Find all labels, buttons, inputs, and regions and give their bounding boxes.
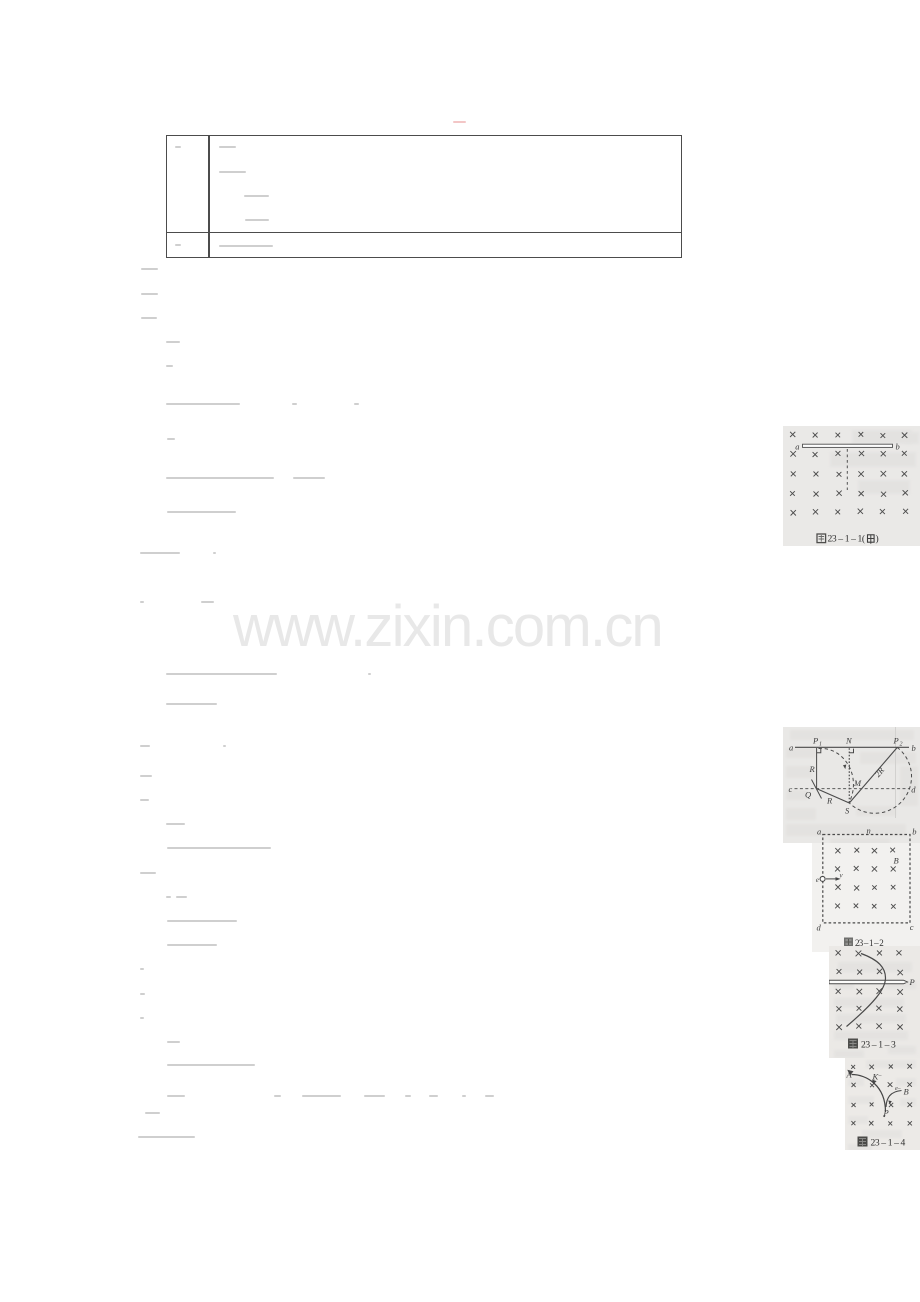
svg-text:R: R <box>809 764 816 774</box>
svg-text:P: P <box>812 736 818 746</box>
svg-text:): ) <box>876 534 879 545</box>
svg-text:Q: Q <box>805 790 811 800</box>
svg-text:B: B <box>894 856 899 866</box>
svg-text:d: d <box>911 785 916 795</box>
svg-text:1: 1 <box>819 742 822 748</box>
svg-text:a: a <box>789 743 793 753</box>
svg-text:e: e <box>816 876 819 884</box>
svg-text:b: b <box>912 828 916 837</box>
svg-text:a: a <box>795 442 799 452</box>
svg-text:e–: e– <box>895 1086 902 1092</box>
svg-text:23 – 1 – 3: 23 – 1 – 3 <box>861 1040 896 1051</box>
svg-text:A: A <box>846 1070 853 1080</box>
svg-text:M: M <box>853 778 862 788</box>
svg-text:B: B <box>904 1087 909 1097</box>
svg-text:P: P <box>909 977 915 987</box>
svg-text:a: a <box>817 828 821 837</box>
svg-text:2: 2 <box>900 742 903 748</box>
svg-text:R: R <box>826 796 833 806</box>
svg-text:b: b <box>896 442 900 452</box>
svg-text:P: P <box>893 736 899 746</box>
svg-text:23 – 1 – 4: 23 – 1 – 4 <box>871 1138 906 1149</box>
svg-text:P: P <box>883 1108 889 1118</box>
svg-text:b: b <box>912 743 916 753</box>
svg-text:c: c <box>789 784 793 794</box>
svg-text:23 – 1 – 1(: 23 – 1 – 1( <box>828 534 865 545</box>
svg-text:c: c <box>910 922 914 932</box>
